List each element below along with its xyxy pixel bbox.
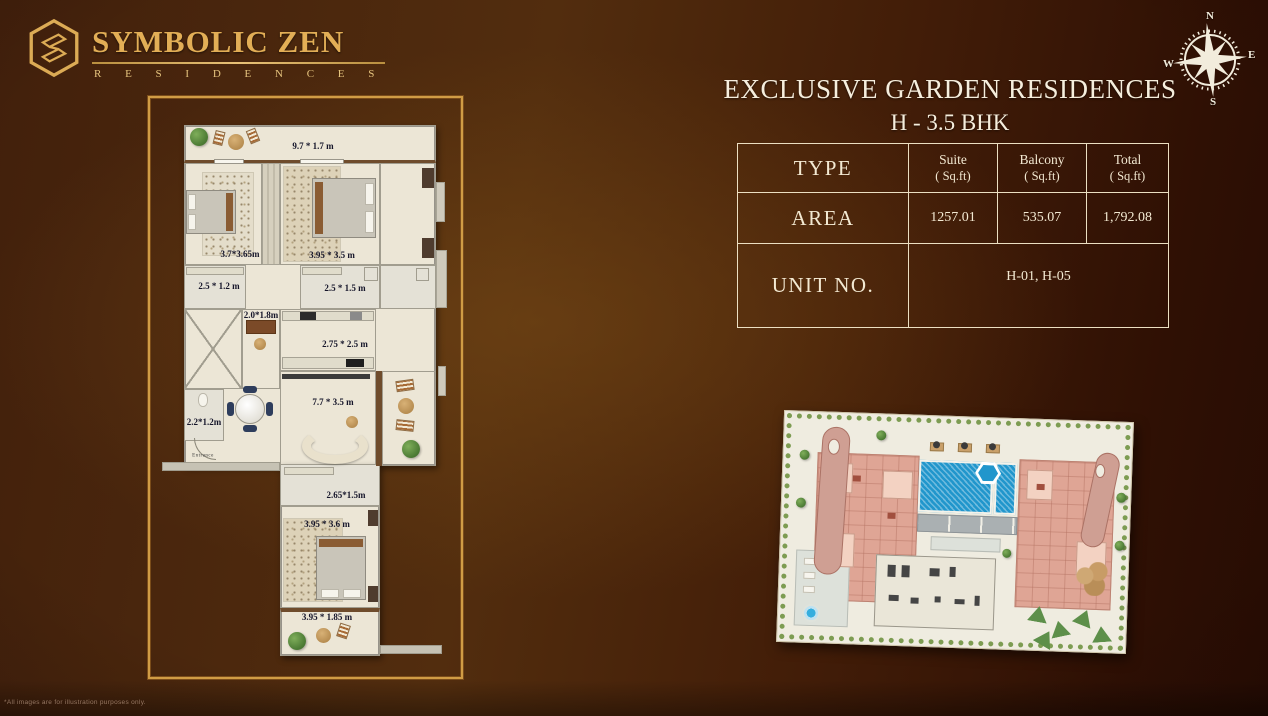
brand-tagline: R E S I D E N C E S bbox=[94, 68, 385, 80]
dimension-label: 2.65*1.5m bbox=[327, 490, 366, 500]
title-line-1: EXCLUSIVE GARDEN RESIDENCES bbox=[620, 74, 1268, 105]
site-key-plan bbox=[776, 410, 1134, 654]
unit-detail bbox=[887, 513, 895, 519]
dining-chair bbox=[243, 425, 257, 432]
autumn-tree bbox=[1073, 561, 1112, 596]
dimension-label: 7.7 * 3.5 m bbox=[312, 397, 353, 407]
dimension-label: 3.95 * 1.85 m bbox=[302, 612, 352, 622]
dimension-label: 2.5 * 1.2 m bbox=[198, 281, 239, 291]
page-title: EXCLUSIVE GARDEN RESIDENCES H - 3.5 BHK bbox=[620, 74, 1268, 136]
spec-header-suite: Suite ( Sq.ft) bbox=[908, 143, 997, 192]
wardrobe-unit bbox=[368, 586, 378, 602]
lounger bbox=[803, 572, 815, 579]
spec-header-balcony: Balcony ( Sq.ft) bbox=[997, 143, 1086, 192]
brand-logo: SYMBOLIC ZEN R E S I D E N C E S bbox=[26, 18, 385, 83]
brochure-page: SYMBOLIC ZEN R E S I D E N C E S N E S W… bbox=[0, 0, 1268, 716]
wardrobe-unit bbox=[368, 510, 378, 526]
spec-header-total: Total ( Sq.ft) bbox=[1086, 143, 1168, 192]
coffee-table bbox=[346, 416, 358, 428]
gym-equipment bbox=[901, 565, 909, 577]
spec-type-label: TYPE bbox=[737, 143, 908, 192]
spec-table: TYPE Suite ( Sq.ft) Balcony ( Sq.ft) Tot… bbox=[737, 143, 1169, 328]
entrance-label: Entrance bbox=[192, 454, 214, 459]
unit-room bbox=[882, 470, 913, 499]
shaft bbox=[184, 309, 242, 389]
side-ledge bbox=[438, 366, 446, 396]
dimension-label: 2.75 * 2.5 m bbox=[322, 339, 368, 349]
spec-area-label: AREA bbox=[737, 192, 908, 243]
side-ledge bbox=[436, 182, 445, 222]
lounger bbox=[803, 586, 815, 593]
tv-unit bbox=[282, 374, 370, 379]
wardrobe-unit bbox=[422, 168, 434, 188]
desk bbox=[246, 320, 276, 334]
terrace-chair bbox=[395, 419, 414, 432]
spec-unit-label: UNIT NO. bbox=[737, 243, 908, 327]
window bbox=[214, 159, 244, 164]
wardrobe bbox=[262, 163, 280, 265]
shower bbox=[364, 267, 378, 281]
dimension-label: 9.7 * 1.7 m bbox=[292, 141, 333, 151]
bed bbox=[312, 178, 376, 238]
dining-chair bbox=[227, 402, 234, 416]
disclaimer-footnote: *All images are for illustration purpose… bbox=[4, 699, 146, 706]
balcony-table bbox=[228, 134, 244, 150]
side-ledge bbox=[380, 645, 442, 654]
dimension-label: 3.7*3.65m bbox=[221, 249, 260, 259]
spec-unit-value: H-01, H-05 bbox=[908, 243, 1168, 327]
dimension-label: 2.5 * 1.5 m bbox=[324, 283, 365, 293]
gym-equipment bbox=[910, 597, 918, 603]
fridge bbox=[350, 312, 362, 320]
brand-name: SYMBOLIC ZEN bbox=[92, 26, 385, 57]
gym-equipment bbox=[889, 595, 899, 601]
desk-chair bbox=[254, 338, 266, 350]
compass-e-label: E bbox=[1248, 49, 1255, 61]
vanity bbox=[302, 267, 342, 275]
wood-wall bbox=[376, 371, 382, 466]
bed bbox=[186, 190, 236, 234]
gym-equipment bbox=[974, 596, 979, 606]
vanity bbox=[186, 267, 244, 275]
gym-equipment bbox=[887, 565, 895, 577]
gym-equipment bbox=[935, 596, 941, 602]
washer bbox=[416, 268, 429, 281]
gym-equipment bbox=[954, 599, 964, 604]
entry-walkway bbox=[162, 462, 280, 471]
dining-chair bbox=[243, 386, 257, 393]
spec-area-total-value: 1,792.08 bbox=[1086, 192, 1168, 243]
dimension-label: 3.95 * 3.6 m bbox=[304, 519, 350, 529]
side-ledge bbox=[436, 250, 447, 308]
dimension-label: 2.2*1.2m bbox=[187, 417, 222, 427]
sofa bbox=[302, 428, 368, 464]
gym-equipment bbox=[929, 568, 939, 576]
spec-area-balcony-value: 535.07 bbox=[997, 192, 1086, 243]
window bbox=[300, 159, 344, 164]
cooktop bbox=[346, 359, 364, 367]
compass-w-label: W bbox=[1163, 58, 1174, 70]
wardrobe-unit bbox=[422, 238, 434, 258]
lobby bbox=[930, 536, 1000, 552]
unit-detail bbox=[1037, 484, 1045, 490]
balcony-table bbox=[316, 628, 331, 643]
logo-divider bbox=[92, 62, 385, 64]
unit-detail bbox=[853, 475, 861, 481]
vanity bbox=[284, 467, 334, 475]
compass-n-label: N bbox=[1206, 10, 1214, 22]
stove bbox=[300, 312, 316, 320]
spec-area-suite-value: 1257.01 bbox=[908, 192, 997, 243]
gym-equipment bbox=[949, 567, 955, 577]
title-line-2: H - 3.5 BHK bbox=[620, 110, 1268, 136]
pool-deck bbox=[917, 514, 1018, 535]
balcony-plant bbox=[190, 128, 208, 146]
terrace-plant bbox=[402, 440, 420, 458]
floor-plan: 9.7 * 1.7 m 3.7*3.65m 3.95 * 3.5 m 2.5 *… bbox=[150, 98, 461, 677]
dining-chair bbox=[266, 402, 273, 416]
bed bbox=[316, 536, 366, 600]
balcony-plant bbox=[288, 632, 306, 650]
hexagon-logo-icon bbox=[26, 18, 82, 83]
floor-plan-frame: 9.7 * 1.7 m 3.7*3.65m 3.95 * 3.5 m 2.5 *… bbox=[148, 96, 463, 679]
dimension-label: 2.0*1.8m bbox=[244, 310, 279, 320]
dimension-label: 3.95 * 3.5 m bbox=[309, 250, 355, 260]
terrace-table bbox=[398, 398, 414, 414]
toilet bbox=[198, 393, 208, 407]
dining-table bbox=[235, 394, 265, 424]
